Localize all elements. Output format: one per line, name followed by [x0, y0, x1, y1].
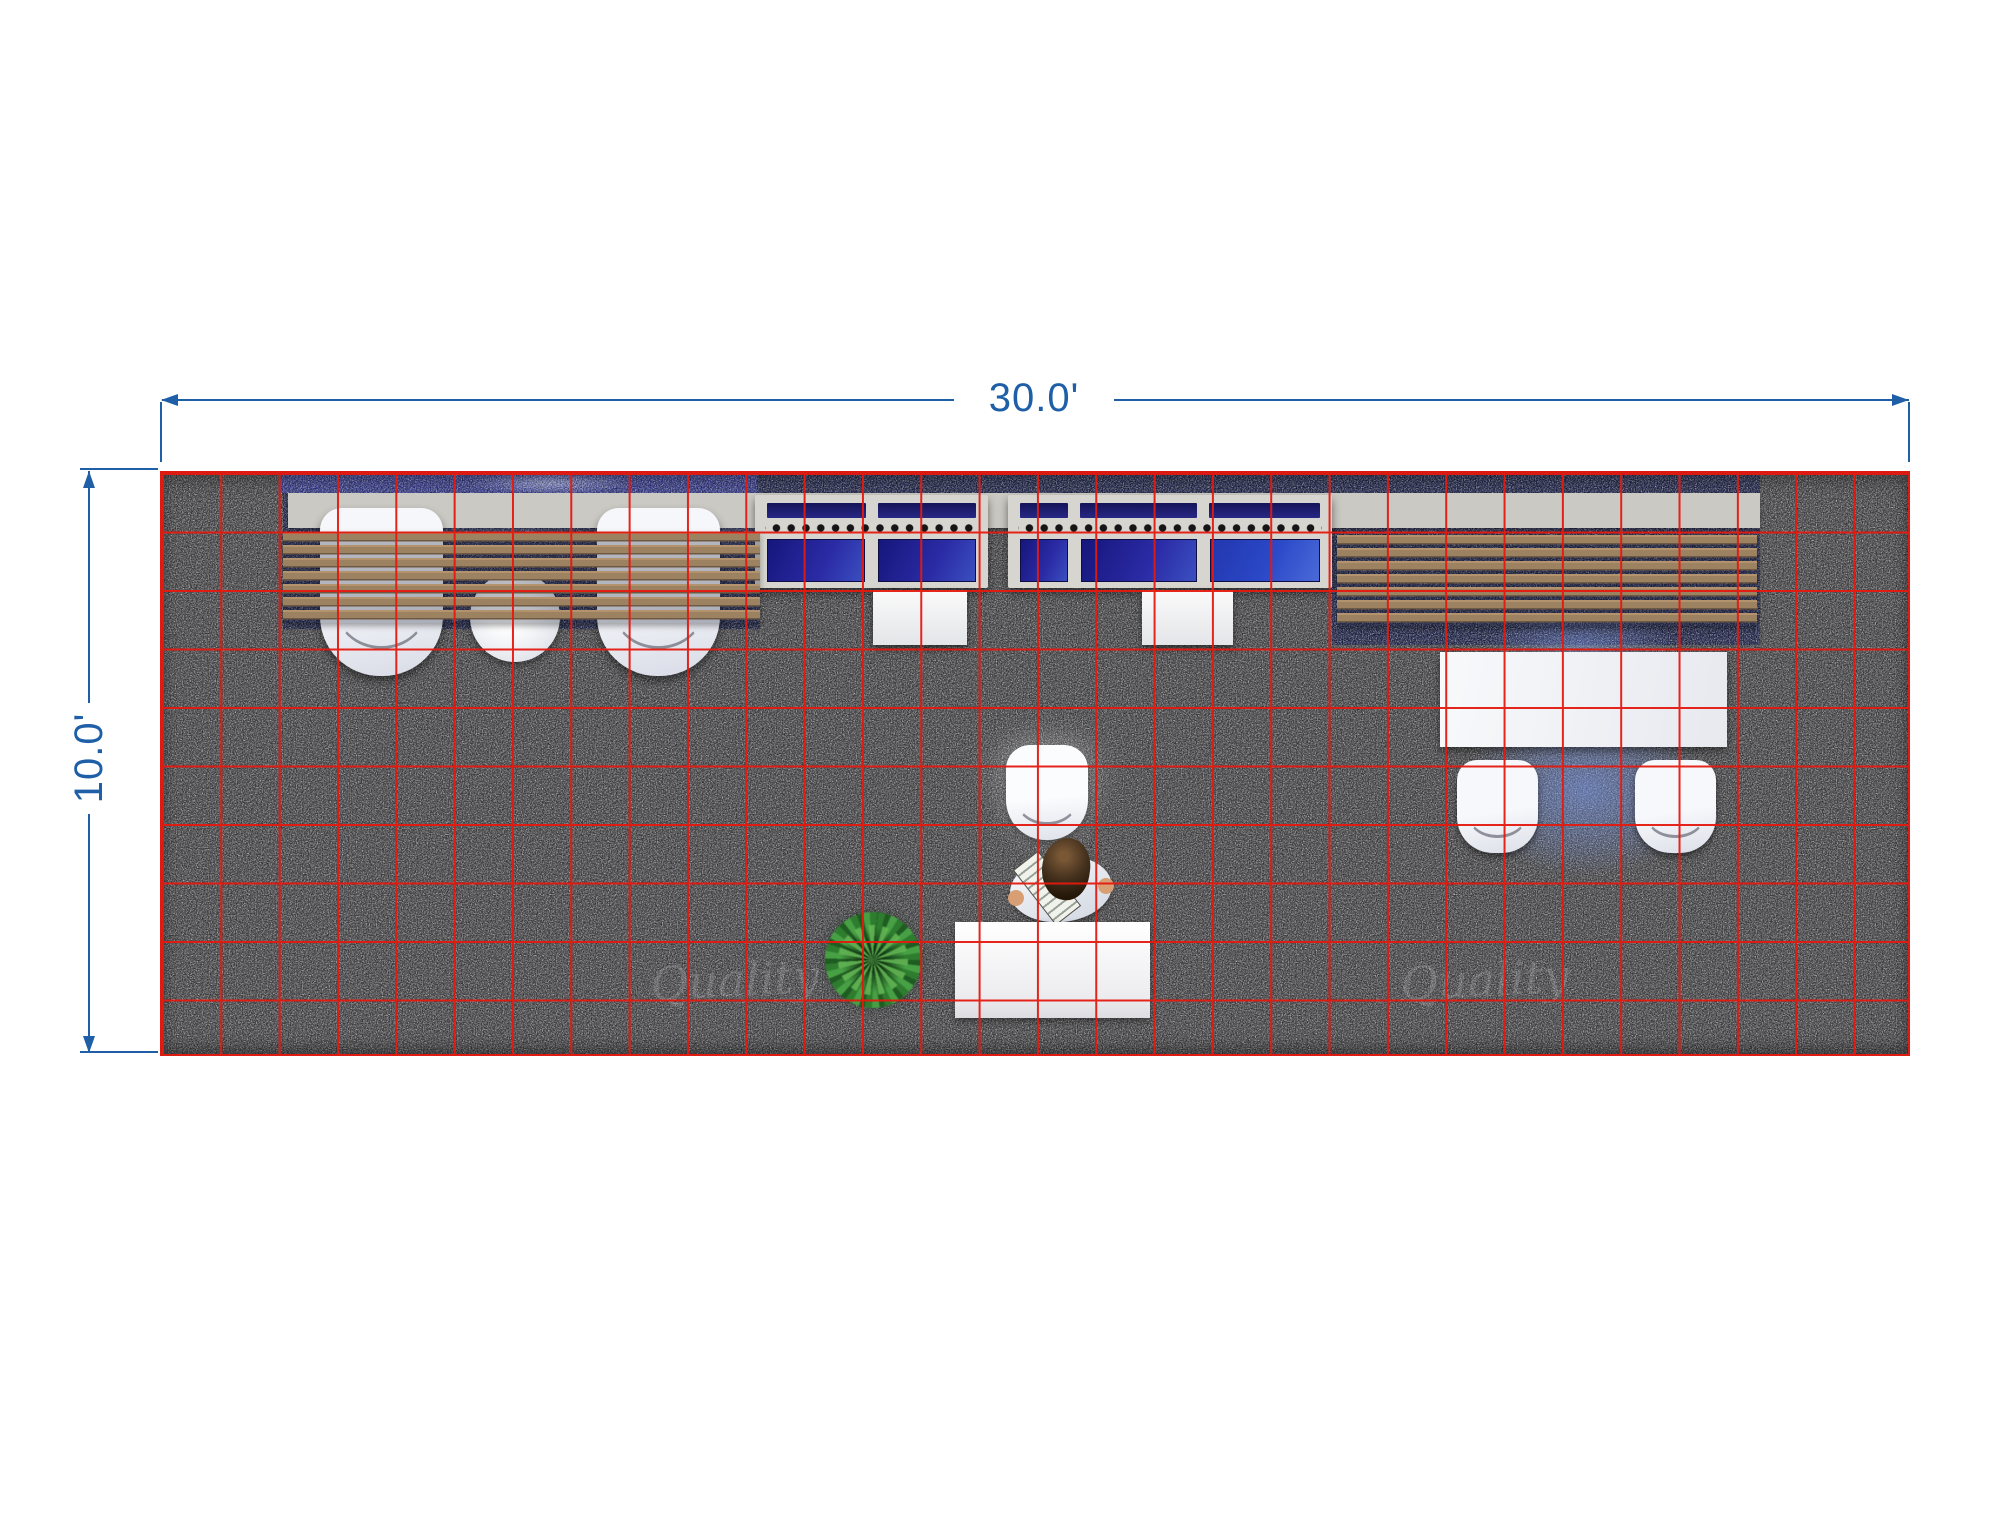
- floor-plan-canvas: 30.0' 10.0' Quality Quality: [0, 0, 2000, 1520]
- depth-dimension-label: 10.0': [64, 688, 114, 828]
- width-extension-tick-left: [160, 402, 162, 462]
- width-arrow-right-icon: [1892, 394, 1909, 406]
- depth-dimension-line-top: [88, 471, 90, 703]
- depth-dimension-line-bottom: [88, 814, 90, 1053]
- width-dimension-line-left: [162, 399, 954, 401]
- width-dimension-label: 30.0': [954, 376, 1114, 421]
- floor-grid-overlay: [160, 471, 1910, 1056]
- depth-extension-tick-top: [80, 468, 158, 470]
- depth-arrow-up-icon: [83, 471, 95, 488]
- depth-extension-tick-bottom: [80, 1051, 158, 1053]
- width-dimension-line-right: [1114, 399, 1909, 401]
- width-arrow-left-icon: [161, 394, 178, 406]
- booth-area: Quality Quality: [160, 471, 1910, 1056]
- width-extension-tick-right: [1908, 402, 1910, 462]
